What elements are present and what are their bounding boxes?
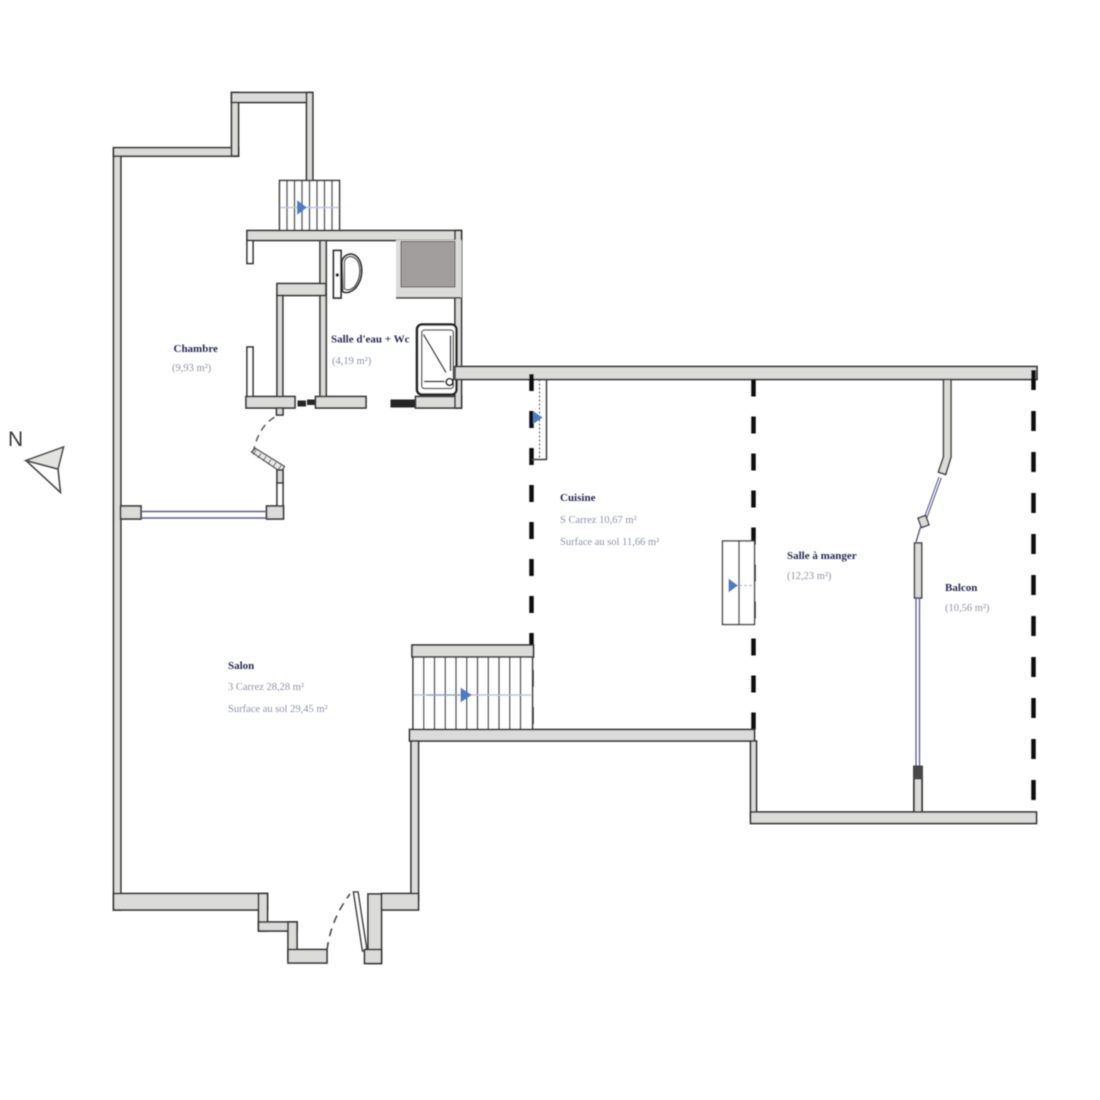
svg-text:Salon: Salon [228,660,254,672]
svg-text:Salle d'eau + Wc: Salle d'eau + Wc [331,334,410,346]
svg-text:Chambre: Chambre [174,343,219,355]
svg-text:3 Carrez 28,28 m²: 3 Carrez 28,28 m² [228,682,304,693]
svg-text:Surface au sol 11,66 m²: Surface au sol 11,66 m² [560,537,659,548]
svg-text:(10,56 m²): (10,56 m²) [945,603,990,614]
svg-text:S Carrez 10,67 m²: S Carrez 10,67 m² [560,515,637,526]
svg-text:N: N [8,428,23,451]
svg-text:Balcon: Balcon [945,582,977,594]
svg-text:Surface au sol 29,45 m²: Surface au sol 29,45 m² [228,704,328,715]
svg-text:(12,23 m²): (12,23 m²) [787,571,832,582]
svg-text:Salle à manger: Salle à manger [787,550,857,562]
svg-text:(9,93 m²): (9,93 m²) [172,363,212,374]
svg-text:(4,19 m²): (4,19 m²) [332,356,372,367]
svg-text:Cuisine: Cuisine [560,492,596,504]
